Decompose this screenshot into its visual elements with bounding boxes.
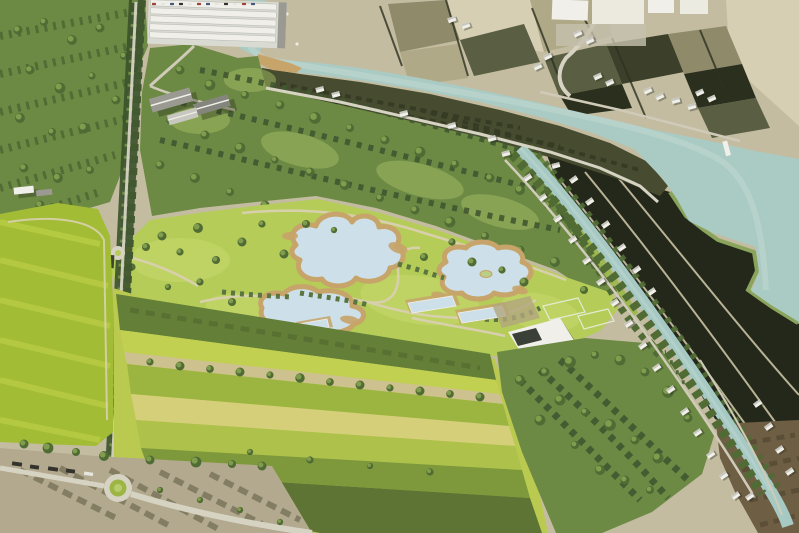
boat <box>295 42 298 45</box>
roundabout-main <box>104 474 132 502</box>
pond-island <box>480 271 492 278</box>
aerial-rendering <box>0 0 799 533</box>
greenhouse-complex <box>147 0 287 48</box>
left-field <box>0 184 113 446</box>
aerial-rendering-stage <box>0 0 799 533</box>
